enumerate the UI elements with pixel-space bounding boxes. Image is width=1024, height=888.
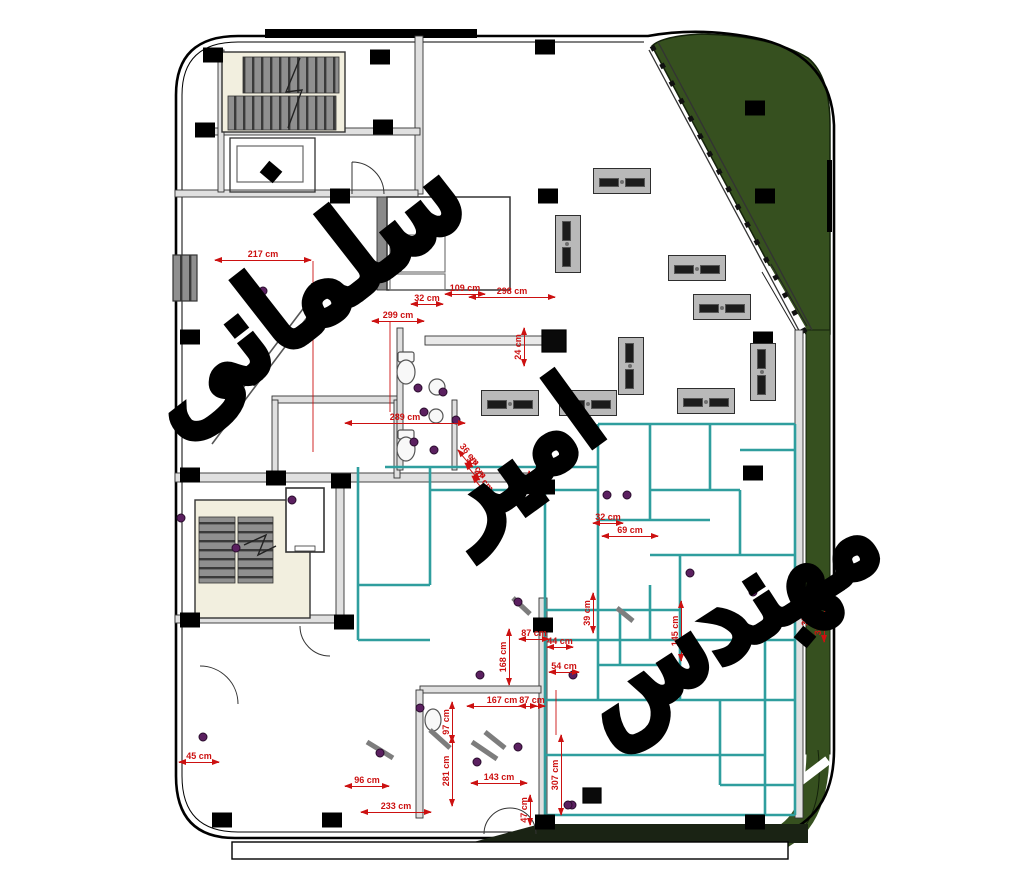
stairs [195, 52, 345, 618]
structural-column [745, 815, 765, 830]
plumbing-point [177, 514, 186, 523]
desk-workstation [555, 215, 581, 273]
desk-workstation [481, 390, 539, 416]
structural-column [266, 471, 286, 486]
structural-column [538, 189, 558, 204]
structural-column [533, 618, 553, 633]
plumbing-point [420, 408, 429, 417]
plumbing-point [686, 569, 695, 578]
structural-column [745, 101, 765, 116]
teal-partitions [358, 424, 795, 815]
plumbing-point [416, 704, 425, 713]
plumbing-point [749, 588, 758, 597]
structural-column [755, 189, 775, 204]
plumbing-point [564, 801, 573, 810]
plumbing-point [452, 416, 461, 425]
structural-column [212, 813, 232, 828]
structural-column [535, 40, 555, 55]
structural-column [373, 120, 393, 135]
structural-column [330, 189, 350, 204]
plumbing-point [232, 544, 241, 553]
radiator [173, 255, 197, 301]
structural-column [743, 466, 763, 481]
desk-workstation [559, 390, 617, 416]
desk-workstation [677, 388, 735, 414]
structural-column [203, 48, 223, 63]
sink [429, 409, 443, 423]
plumbing-point [414, 384, 423, 393]
structural-column [334, 615, 354, 630]
plumbing-point [476, 671, 485, 680]
plumbing-point [430, 446, 439, 455]
toilet [397, 360, 415, 384]
plumbing-point [603, 491, 612, 500]
plumbing-point [410, 438, 419, 447]
desk-workstation [593, 168, 651, 194]
desk-workstation [668, 255, 726, 281]
plumbing-point [473, 758, 482, 767]
structural-column [370, 50, 390, 65]
floor-plan-canvas: 217 cm299 cm32 cm109 cm298 cm24 cm289 cm… [0, 0, 1024, 888]
plumbing-point [376, 749, 385, 758]
structural-column [535, 815, 555, 830]
plumbing-point [569, 671, 578, 680]
desk-workstation [618, 337, 644, 395]
desk-workstation [750, 343, 776, 401]
red-guide-lines [313, 261, 556, 735]
structural-column [535, 480, 555, 495]
plumbing-point [288, 496, 297, 505]
toilet [425, 709, 441, 731]
structural-column [180, 330, 200, 345]
plumbing-point [623, 491, 632, 500]
plumbing-point [514, 743, 523, 752]
plumbing-point [199, 733, 208, 742]
structural-column [180, 613, 200, 628]
plumbing-point [439, 388, 448, 397]
plan-linework [0, 0, 1024, 888]
landscape-green-area [649, 34, 832, 857]
plumbing-point [259, 287, 268, 296]
structural-column [195, 123, 215, 138]
structural-column [180, 468, 200, 483]
structural-column [331, 474, 351, 489]
plumbing-point [514, 598, 523, 607]
structural-column [322, 813, 342, 828]
desk-workstation [693, 294, 751, 320]
